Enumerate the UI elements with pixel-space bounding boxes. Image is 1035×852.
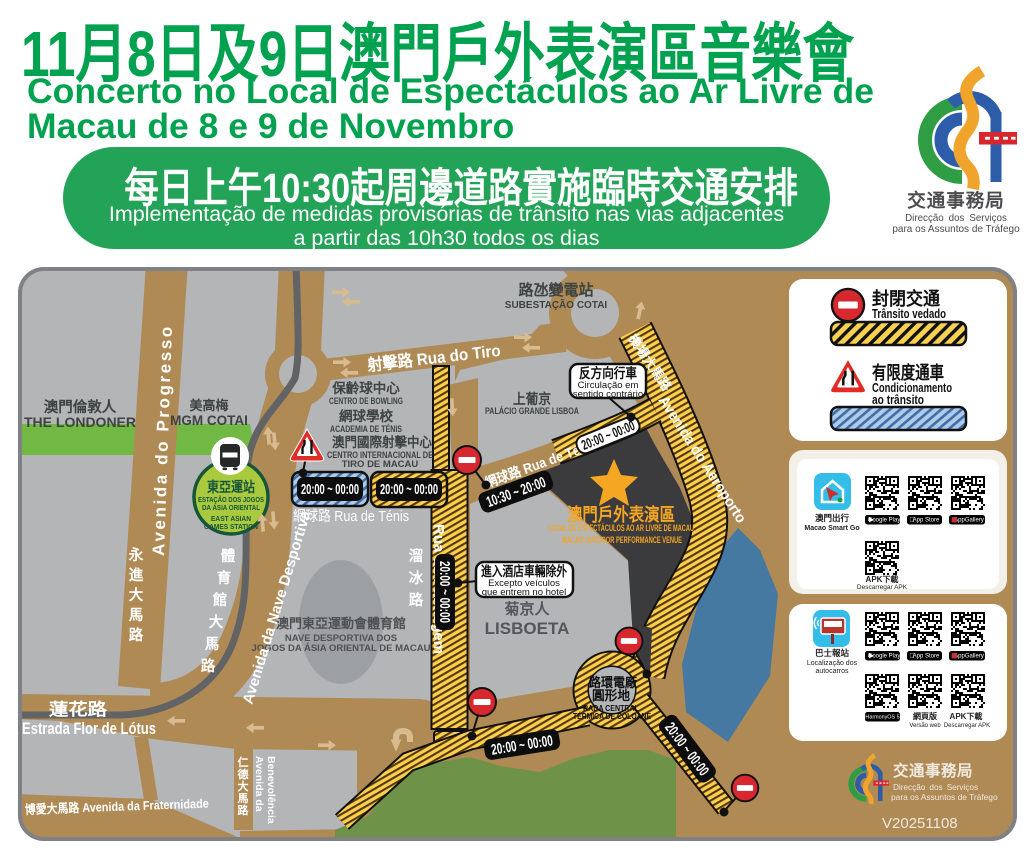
svg-text:馬: 馬 xyxy=(238,792,249,805)
svg-text:sentido contrário: sentido contrário xyxy=(573,389,643,400)
svg-text:AppGallery: AppGallery xyxy=(954,654,984,660)
svg-text:Benevolência: Benevolência xyxy=(265,756,277,824)
svg-text:20:00 ~ 00:00: 20:00 ~ 00:00 xyxy=(436,561,453,623)
svg-text:ao trânsito: ao trânsito xyxy=(872,393,924,407)
svg-text:ACADEMIA DE TÉNIS: ACADEMIA DE TÉNIS xyxy=(330,424,402,435)
svg-text:Direcção dos Serviços: Direcção dos Serviços xyxy=(905,213,1007,224)
svg-text:JOGOS DA ÁSIA ORIENTAL DE MACA: JOGOS DA ÁSIA ORIENTAL DE MACAU xyxy=(252,643,431,654)
svg-text:autocarros: autocarros xyxy=(815,668,849,675)
svg-text:蓮花路: 蓮花路 xyxy=(49,699,108,719)
svg-text:圓形地: 圓形地 xyxy=(592,688,630,703)
svg-text:大: 大 xyxy=(238,779,249,793)
svg-text:路: 路 xyxy=(201,657,216,675)
svg-text:Macao Smart Go: Macao Smart Go xyxy=(804,525,859,532)
svg-text:路氹變電站: 路氹變電站 xyxy=(518,281,593,299)
svg-text:THE LONDONER: THE LONDONER xyxy=(24,414,136,430)
svg-text:網頁版: 網頁版 xyxy=(913,711,937,721)
svg-text:路: 路 xyxy=(129,626,144,644)
svg-text:MACAO OUTDOOR PERFORMANCE VENU: MACAO OUTDOOR PERFORMANCE VENUE xyxy=(562,535,682,545)
svg-text:Avenida da: Avenida da xyxy=(253,756,265,812)
svg-text:永: 永 xyxy=(128,546,144,564)
svg-text:網球學校: 網球學校 xyxy=(339,408,393,424)
svg-text:東亞運站: 東亞運站 xyxy=(207,479,255,495)
svg-text:para os Assuntos de Tráfego: para os Assuntos de Tráfego xyxy=(891,792,998,802)
svg-text:MGM COTAI: MGM COTAI xyxy=(170,413,248,428)
svg-text:GAMES STATION: GAMES STATION xyxy=(204,522,258,531)
svg-text:路: 路 xyxy=(409,591,424,609)
svg-text:SUBESTAÇÃO COTAI: SUBESTAÇÃO COTAI xyxy=(505,298,608,311)
svg-text:para os Assuntos de Tráfego: para os Assuntos de Tráfego xyxy=(893,224,1020,235)
svg-text:APK下載: APK下載 xyxy=(950,711,983,721)
svg-text:館: 館 xyxy=(213,591,228,609)
svg-text:菊京人: 菊京人 xyxy=(504,600,550,618)
svg-text:20:00 ~ 00:00: 20:00 ~ 00:00 xyxy=(301,481,359,498)
svg-text:AppGallery: AppGallery xyxy=(954,518,984,524)
svg-text:馬: 馬 xyxy=(205,636,220,653)
svg-text:LISBOETA: LISBOETA xyxy=(485,619,570,638)
svg-text:APK下載: APK下載 xyxy=(866,574,899,584)
svg-text:Descarregar APK: Descarregar APK xyxy=(944,723,990,729)
svg-text:體: 體 xyxy=(221,547,236,565)
svg-text:20:00 ~ 00:00: 20:00 ~ 00:00 xyxy=(380,481,438,498)
svg-text:美高梅: 美高梅 xyxy=(189,398,228,413)
svg-text:仁: 仁 xyxy=(238,755,249,769)
svg-text:LOCAL DE ESPECTÁCULOS AO AR LI: LOCAL DE ESPECTÁCULOS AO AR LIVRE DE MAC… xyxy=(548,523,694,533)
svg-text:交通事務局: 交通事務局 xyxy=(893,761,973,780)
svg-text:que entrem no hotel: que entrem no hotel xyxy=(482,587,567,598)
svg-text:App Store: App Store xyxy=(913,654,940,660)
svg-text:交通事務局: 交通事務局 xyxy=(907,190,1005,211)
svg-text:Localização dos: Localização dos xyxy=(807,660,858,667)
svg-text:大: 大 xyxy=(129,586,144,604)
svg-text:HarmonyOS 5: HarmonyOS 5 xyxy=(865,715,899,721)
svg-text:溜: 溜 xyxy=(409,547,424,565)
svg-text:DA ÁSIA ORIENTAL: DA ÁSIA ORIENTAL xyxy=(202,503,261,512)
svg-text:大: 大 xyxy=(209,613,224,631)
svg-text:TÉRMICA DE COLOANE: TÉRMICA DE COLOANE xyxy=(573,711,651,721)
svg-text:PALÁCIO GRANDE LISBOA: PALÁCIO GRANDE LISBOA xyxy=(485,406,579,417)
svg-text:育: 育 xyxy=(217,569,232,587)
svg-text:TIRO DE MACAU: TIRO DE MACAU xyxy=(342,459,419,470)
svg-text:進: 進 xyxy=(129,567,144,584)
svg-text:馬: 馬 xyxy=(129,607,144,624)
svg-text:CENTRO DE BOWLING: CENTRO DE BOWLING xyxy=(329,396,403,407)
svg-text::  xyxy=(909,517,914,524)
svg-text:澳門出行: 澳門出行 xyxy=(815,513,850,523)
svg-text:Descarregar APK: Descarregar APK xyxy=(857,584,908,591)
svg-text:路: 路 xyxy=(238,803,250,817)
svg-text:巴士報站: 巴士報站 xyxy=(815,648,850,658)
svg-text:Trânsito vedado: Trânsito vedado xyxy=(872,306,946,321)
svg-text:澳門戶外表演區: 澳門戶外表演區 xyxy=(567,504,675,525)
svg-text:V20251108: V20251108 xyxy=(882,815,958,832)
svg-text:Estrada Flor de Lótus: Estrada Flor de Lótus xyxy=(22,719,156,738)
svg-text:德: 德 xyxy=(237,767,249,781)
svg-text:上葡京: 上葡京 xyxy=(513,391,551,407)
svg-text:澳門國際射擊中心: 澳門國際射擊中心 xyxy=(332,434,432,450)
svg-text:Direcção dos Serviços: Direcção dos Serviços xyxy=(893,783,978,792)
svg-text:App Store: App Store xyxy=(913,518,940,524)
svg-text:反方向行車: 反方向行車 xyxy=(579,365,637,381)
svg-text:有限度通車: 有限度通車 xyxy=(872,362,944,383)
svg-text:澳門東亞運動會體育館: 澳門東亞運動會體育館 xyxy=(276,616,406,631)
svg-text:進入酒店車輛除外: 進入酒店車輛除外 xyxy=(481,563,567,579)
svg-text:Versão web: Versão web xyxy=(909,723,941,729)
svg-text::  xyxy=(909,653,914,660)
svg-text:保齡球中心: 保齡球中心 xyxy=(331,380,400,396)
svg-text:冰: 冰 xyxy=(409,569,424,587)
